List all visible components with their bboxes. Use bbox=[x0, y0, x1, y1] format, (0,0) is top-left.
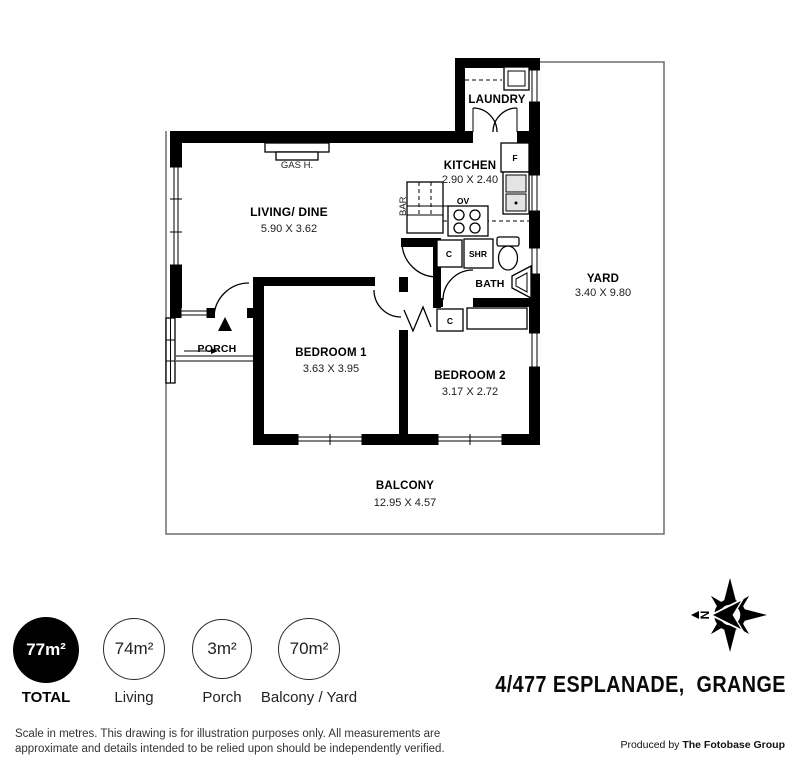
property-address: 4/477 ESPLANADE, GRANGE bbox=[495, 671, 786, 698]
label-fridge: F bbox=[512, 153, 517, 163]
label-cupboard-1: C bbox=[446, 249, 452, 259]
window-porch-top bbox=[181, 308, 207, 318]
producer-name: The Fotobase Group bbox=[682, 739, 785, 751]
label-bar: BAR bbox=[398, 196, 409, 216]
room-label-bedroom2: BEDROOM 2 bbox=[434, 370, 505, 382]
room-label-bedroom1: BEDROOM 1 bbox=[295, 347, 367, 359]
legend-area-porch: 3m² bbox=[207, 639, 236, 659]
room-dims-bedroom2: 3.17 X 2.72 bbox=[442, 386, 498, 398]
entry-door bbox=[214, 283, 249, 318]
room-dims-yard: 3.40 X 9.80 bbox=[575, 287, 631, 299]
room-dims-bedroom1: 3.63 X 3.95 bbox=[303, 363, 359, 375]
room-label-yard: YARD bbox=[587, 273, 619, 285]
legend-label-balcony: Balcony / Yard bbox=[248, 689, 370, 706]
label-shower: SHR bbox=[469, 249, 487, 259]
legend-circle-porch: 3m² bbox=[192, 619, 252, 679]
vanity bbox=[512, 266, 531, 298]
label-oven: OV bbox=[457, 196, 470, 206]
cooktop bbox=[448, 206, 488, 236]
producer-credit: Produced by The Fotobase Group bbox=[620, 739, 785, 751]
entry-arrow-icon bbox=[218, 317, 232, 331]
legend-label-living: Living bbox=[93, 689, 175, 706]
window-living bbox=[170, 167, 182, 265]
legend-area-living: 74m² bbox=[115, 639, 154, 659]
room-dims-living: 5.90 X 3.62 bbox=[261, 223, 317, 235]
producer-prefix: Produced by bbox=[620, 739, 682, 751]
legend-area-total: 77m² bbox=[26, 640, 66, 660]
disclaimer-text: Scale in metres. This drawing is for ill… bbox=[15, 727, 445, 757]
room-label-living: LIVING/ DINE bbox=[250, 205, 328, 219]
window-bed2-side bbox=[529, 333, 540, 367]
window-laundry bbox=[529, 70, 540, 102]
label-gas-heater: GAS H. bbox=[281, 160, 313, 171]
hall-door bbox=[402, 242, 437, 277]
compass-icon: N bbox=[691, 577, 768, 653]
room-label-kitchen: KITCHEN bbox=[444, 160, 497, 172]
bar-counter bbox=[407, 182, 443, 233]
disclaimer-line-2: approximate and details intended to be r… bbox=[15, 742, 445, 757]
gas-heater bbox=[265, 143, 329, 152]
legend-label-total: TOTAL bbox=[3, 689, 89, 706]
room-label-bath: BATH bbox=[475, 278, 504, 290]
room-dims-kitchen: 2.90 X 2.40 bbox=[442, 174, 498, 186]
floorplan-drawing: LAUNDRY KITCHEN 2.90 X 2.40 LIVING/ DINE… bbox=[0, 0, 800, 660]
legend-circle-total: 77m² bbox=[13, 617, 79, 683]
floorplan-page: LAUNDRY KITCHEN 2.90 X 2.40 LIVING/ DINE… bbox=[0, 0, 800, 771]
toilet bbox=[497, 237, 519, 246]
room-label-laundry: LAUNDRY bbox=[468, 94, 525, 106]
wardrobe bbox=[467, 308, 527, 329]
room-label-porch: PORCH bbox=[198, 343, 237, 355]
bedroom2-opening bbox=[404, 307, 431, 331]
window-bed2 bbox=[438, 434, 502, 445]
label-cupboard-2: C bbox=[447, 316, 453, 326]
compass-north-letter: N bbox=[698, 611, 712, 620]
bath-door bbox=[443, 270, 473, 300]
window-porch-side bbox=[166, 318, 175, 383]
window-bed1 bbox=[298, 434, 362, 445]
room-label-balcony: BALCONY bbox=[376, 480, 434, 492]
legend-area-balcony: 70m² bbox=[290, 639, 329, 659]
legend-circle-living: 74m² bbox=[103, 618, 165, 680]
bedroom1-door bbox=[374, 290, 401, 317]
legend-circle-balcony: 70m² bbox=[278, 618, 340, 680]
room-dims-balcony: 12.95 X 4.57 bbox=[374, 497, 436, 509]
disclaimer-line-1: Scale in metres. This drawing is for ill… bbox=[15, 727, 445, 742]
window-kitchen bbox=[529, 175, 540, 211]
